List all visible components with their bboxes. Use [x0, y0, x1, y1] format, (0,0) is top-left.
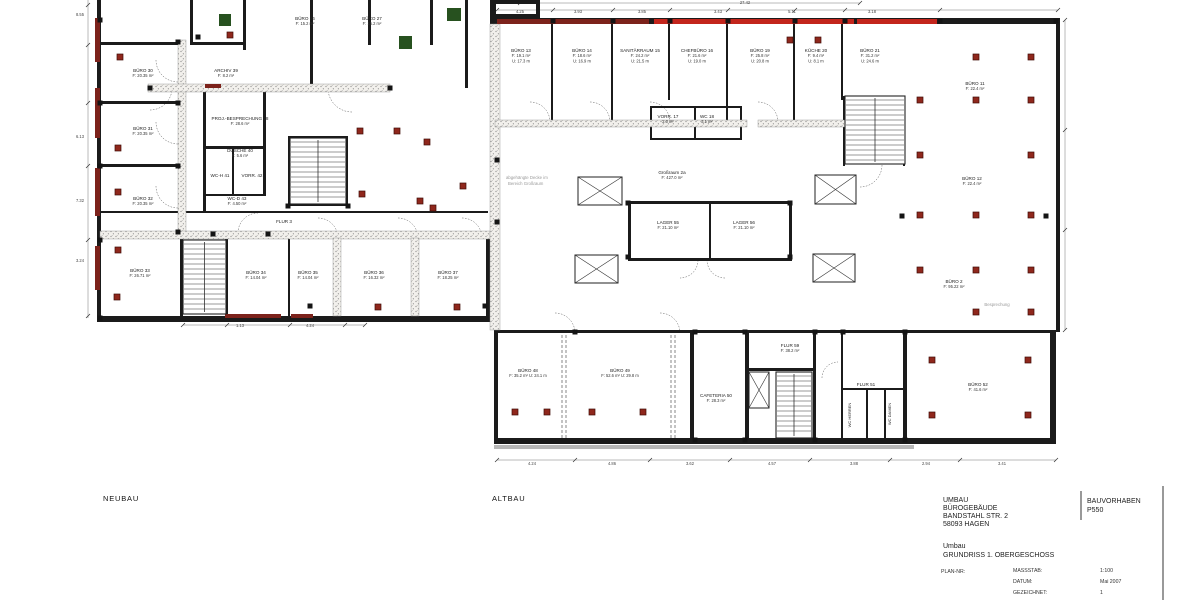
room-label: BÜRO 11F: 22.4 m²: [965, 80, 985, 91]
detector-symbol: [973, 309, 979, 315]
scale-value: 1:100: [1100, 568, 1113, 574]
wall-segment: [709, 201, 711, 258]
wall-pier-marker: [813, 438, 818, 443]
room-label: WC-H 41: [211, 173, 230, 178]
detector-symbol: [394, 128, 400, 134]
svg-text:BÜRO 52: BÜRO 52: [968, 381, 988, 387]
wall-segment: [841, 388, 905, 390]
door-swing-arc: [860, 165, 882, 187]
wall-segment: [333, 238, 341, 316]
floor-plan-canvas: BÜRO 30F: 20.35 m²BÜRO 31F: 20.35 m²BÜRO…: [0, 0, 1200, 600]
door-swing-arc: [707, 260, 725, 278]
detector-symbol: [1025, 412, 1031, 418]
detector-symbol: [1028, 212, 1034, 218]
wall-segment: [884, 390, 886, 440]
svg-text:F: 21.10 m²: F: 21.10 m²: [734, 225, 756, 230]
wall-pier-marker: [551, 19, 556, 24]
drawn-by-value: 1: [1100, 590, 1103, 596]
svg-text:KÜCHE 20: KÜCHE 20: [805, 47, 828, 53]
wall-segment: [745, 368, 815, 371]
wall-pier-marker: [843, 19, 848, 24]
dimension-text: 3.41: [998, 461, 1007, 466]
wall-segment: [310, 0, 313, 84]
svg-text:U: 21.5 m: U: 21.5 m: [631, 58, 649, 63]
wall-segment: [95, 18, 100, 62]
svg-text:BÜRO 33: BÜRO 33: [130, 267, 150, 273]
svg-text:F: 41.6 m²: F: 41.6 m²: [969, 387, 988, 392]
wall-pier-marker: [743, 330, 748, 335]
wall-pier-marker: [626, 255, 631, 260]
wall-segment: [611, 24, 613, 124]
wall-pier-marker: [668, 19, 673, 24]
project-address-line: UMBAU: [943, 497, 968, 504]
wall-segment: [190, 42, 246, 45]
detector-symbol: [917, 152, 923, 158]
room-label: BÜRO 30F: 20.35 m²: [133, 67, 155, 78]
wall-segment: [857, 19, 937, 24]
svg-text:WC-H 41: WC-H 41: [211, 173, 230, 178]
detector-symbol: [917, 212, 923, 218]
svg-text:BÜRO 26: BÜRO 26: [295, 15, 315, 21]
neubau-label: NEUBAU: [103, 494, 139, 503]
wall-pier-marker: [495, 220, 500, 225]
wall-segment: [1050, 330, 1056, 440]
detector-symbol: [973, 212, 979, 218]
walls-layer: [95, 0, 1060, 449]
dimension-text: 3.88: [850, 461, 859, 466]
title-block: UMBAU BÜROGEBÄUDE BANDSTAHL STR. 2 58093…: [941, 486, 1163, 600]
wall-pier-marker: [1044, 214, 1049, 219]
svg-text:F: 15.2 m²: F: 15.2 m²: [296, 21, 315, 26]
staircase: [290, 138, 346, 204]
svg-text:U: 16.9 m: U: 16.9 m: [573, 58, 591, 63]
wall-segment: [225, 314, 281, 318]
room-label: BÜRO 48F: 35.2 m² U: 24.1 m: [509, 367, 547, 378]
detector-symbol: [917, 97, 923, 103]
wall-pier-marker: [286, 204, 291, 209]
detector-symbol: [1025, 357, 1031, 363]
wall-segment: [758, 120, 845, 127]
wall-segment: [494, 0, 540, 4]
wall-segment: [219, 14, 231, 26]
wall-segment: [95, 88, 100, 138]
detector-symbol: [227, 32, 233, 38]
wall-pier-marker: [176, 101, 181, 106]
project-type-label: BAUVORHABEN: [1087, 498, 1141, 505]
wall-segment: [100, 42, 182, 45]
door-swing-arc: [156, 60, 178, 82]
wall-segment: [813, 333, 816, 440]
detector-symbol: [430, 205, 436, 211]
dimension-text: 1.13: [236, 323, 245, 328]
wall-pier-marker: [388, 86, 393, 91]
wall-segment: [690, 333, 694, 440]
detector-symbol: [114, 294, 120, 300]
svg-text:U: 17.3 m: U: 17.3 m: [512, 58, 530, 63]
wall-segment: [841, 24, 843, 100]
room-label: CAFETERIA 50F: 28.3 m²: [700, 393, 732, 403]
svg-text:BÜRO 11: BÜRO 11: [965, 80, 985, 86]
detector-symbol: [787, 37, 793, 43]
svg-text:BÜRO 35: BÜRO 35: [298, 269, 318, 275]
svg-text:BÜRO 27: BÜRO 27: [362, 15, 382, 21]
svg-text:BÜRO 14: BÜRO 14: [572, 47, 592, 53]
wall-pier-marker: [813, 330, 818, 335]
shaft-xbox: [749, 372, 769, 408]
wall-pier-marker: [1054, 19, 1059, 24]
scale-label: MASSSTAB:: [1013, 568, 1042, 574]
room-label: BÜRO 52F: 41.6 m²: [968, 381, 988, 392]
detector-symbol: [115, 145, 121, 151]
door-swing-arc: [156, 186, 178, 208]
detector-symbol: [375, 304, 381, 310]
wall-segment: [1056, 18, 1060, 332]
dimension-text: 3.93: [574, 9, 583, 14]
wall-pier-marker: [938, 19, 943, 24]
wall-pier-marker: [743, 438, 748, 443]
svg-text:BÜRO 34: BÜRO 34: [246, 269, 266, 275]
detector-symbol: [640, 409, 646, 415]
wall-segment: [411, 238, 419, 316]
room-labels-layer: BÜRO 30F: 20.35 m²BÜRO 31F: 20.35 m²BÜRO…: [130, 15, 989, 403]
svg-text:2.0 m²: 2.0 m²: [662, 119, 674, 124]
svg-text:F: 4.50 m²: F: 4.50 m²: [228, 201, 247, 206]
room-label: BÜRO 35F: 14.04 m²: [298, 269, 320, 280]
wall-segment: [494, 445, 914, 449]
svg-text:F: 22.4 m²: F: 22.4 m²: [966, 86, 985, 91]
room-label: LAGER 56F: 21.10 m²: [733, 220, 755, 230]
wall-segment: [841, 333, 843, 440]
dimension-text: 4.57: [768, 461, 777, 466]
project-address-line: BÜROGEBÄUDE: [943, 504, 998, 512]
wall-segment: [494, 438, 1056, 444]
plan-number-label: PLAN-NR:: [941, 569, 965, 575]
wall-segment: [490, 24, 500, 330]
svg-text:F: 26.71 m²: F: 26.71 m²: [130, 273, 152, 278]
wall-pier-marker: [693, 438, 698, 443]
door-swing-arc: [156, 122, 178, 144]
wall-pier-marker: [788, 255, 793, 260]
annotation-text: WC HERREN: [847, 403, 852, 428]
annotation-text: abgehängte Decke im: [506, 175, 548, 180]
svg-text:BÜRO 48: BÜRO 48: [518, 367, 538, 373]
wall-segment: [497, 19, 649, 24]
detector-symbol: [1028, 309, 1034, 315]
svg-text:BÜRO 31: BÜRO 31: [133, 125, 153, 131]
staircase: [183, 240, 226, 314]
room-label: KÜCHE 20F: 9.4 m²U: 8.1 m: [805, 47, 828, 63]
wall-segment: [668, 24, 670, 100]
drawn-by-label: GEZEICHNET:: [1013, 590, 1047, 596]
detector-symbol: [117, 54, 123, 60]
dimension-text: 7.32: [76, 198, 85, 203]
wall-segment: [399, 36, 412, 49]
wall-segment: [100, 231, 490, 239]
detector-symbol: [1028, 152, 1034, 158]
detector-symbol: [973, 54, 979, 60]
detector-symbol: [973, 97, 979, 103]
wall-pier-marker: [148, 86, 153, 91]
wall-segment: [430, 0, 433, 45]
svg-text:F: 35.2 m² U: 24.1 m: F: 35.2 m² U: 24.1 m: [509, 373, 547, 378]
room-label: WC 183.1 m²: [700, 114, 714, 124]
subject-label: Umbau: [943, 543, 966, 550]
staircase: [776, 372, 812, 438]
room-label: BÜRO 33F: 26.71 m²: [130, 267, 152, 278]
dimension-text: 4.24: [528, 461, 537, 466]
room-label: WC-D 43F: 4.50 m²: [228, 196, 247, 206]
room-label: BÜRO 31F: 20.35 m²: [133, 125, 155, 136]
svg-text:F: 52.6 m² U: 29.8 m: F: 52.6 m² U: 29.8 m: [601, 373, 639, 378]
svg-text:BÜRO 30: BÜRO 30: [133, 67, 153, 73]
door-swing-arc: [822, 362, 838, 378]
room-label: LAGER 55F: 21.10 m²: [657, 220, 679, 230]
room-label: DUSCHE 40F: 5.6 m²: [227, 148, 253, 158]
wall-pier-marker: [98, 18, 103, 23]
detector-symbol: [929, 412, 935, 418]
door-swing-arc: [530, 102, 550, 122]
project-address-line: BANDSTAHL STR. 2: [943, 513, 1008, 520]
room-label: BÜRO 36F: 16.32 m²: [364, 269, 386, 280]
svg-text:F: 20.35 m²: F: 20.35 m²: [133, 201, 155, 206]
room-label: ARCHIV 39F: 8.2 m²: [214, 68, 238, 78]
wall-segment: [654, 19, 854, 24]
detector-symbol: [424, 139, 430, 145]
svg-text:U: 19.0 m: U: 19.0 m: [688, 58, 706, 63]
svg-text:F: 21.10 m²: F: 21.10 m²: [658, 225, 680, 230]
room-label: BÜRO 27F: 15.2 m²: [362, 15, 382, 26]
wall-pier-marker: [176, 164, 181, 169]
dimension-text: 2.94: [922, 461, 931, 466]
dimension-text: 5.11: [788, 9, 796, 14]
wall-segment: [148, 84, 390, 92]
annotation-text: Bereich Großraum: [508, 181, 544, 186]
detector-symbol: [1028, 267, 1034, 273]
room-label: CHEFBÜRO 16F: 21.6 m²U: 19.0 m: [681, 47, 714, 63]
wall-segment: [263, 84, 266, 196]
dimension-text: 3.24: [76, 258, 85, 263]
svg-text:3.1 m²: 3.1 m²: [701, 119, 713, 124]
room-label: BÜRO 34F: 14.04 m²: [246, 269, 268, 280]
detector-symbol: [1028, 54, 1034, 60]
wall-pier-marker: [903, 438, 908, 443]
svg-text:BÜRO 36: BÜRO 36: [364, 269, 384, 275]
wall-pier-marker: [346, 204, 351, 209]
svg-text:CHEFBÜRO 16: CHEFBÜRO 16: [681, 47, 714, 53]
room-label: BÜRO 19F: 25.8 m²U: 20.8 m: [750, 47, 770, 63]
detector-symbol: [815, 37, 821, 43]
detector-symbol: [512, 409, 518, 415]
door-swing-arc: [758, 102, 778, 122]
svg-text:BÜRO 12: BÜRO 12: [962, 175, 982, 181]
wall-pier-marker: [211, 232, 216, 237]
floor-plan-drawing: BÜRO 30F: 20.35 m²BÜRO 31F: 20.35 m²BÜRO…: [0, 0, 1200, 600]
dimension-text: 4.86: [608, 461, 617, 466]
wall-pier-marker: [176, 230, 181, 235]
project-address-line: 58093 HAGEN: [943, 521, 989, 528]
detector-symbol: [544, 409, 550, 415]
wall-segment: [628, 201, 631, 258]
wing-labels: NEUBAU ALTBAU: [103, 494, 525, 503]
room-label: FLUR 3: [276, 219, 292, 224]
detector-symbol: [454, 304, 460, 310]
wall-pier-marker: [693, 330, 698, 335]
dimension-text: 3.43: [714, 9, 723, 14]
wall-segment: [650, 138, 742, 140]
svg-text:F: 20.35 m²: F: 20.35 m²: [133, 73, 155, 78]
dimension-text: 4.25: [516, 9, 525, 14]
wall-pier-marker: [626, 201, 631, 206]
detector-symbol: [460, 183, 466, 189]
room-label: FLUR 51: [857, 382, 876, 387]
detector-symbol: [417, 198, 423, 204]
wall-segment: [447, 8, 461, 21]
room-label: BÜRO 32F: 20.35 m²: [133, 195, 155, 206]
room-label: SANITÄRRAUM 15F: 24.2 m²U: 21.5 m: [620, 47, 660, 63]
wall-pier-marker: [841, 330, 846, 335]
wall-pier-marker: [98, 316, 103, 321]
dimension-text: 4.24: [306, 323, 315, 328]
wall-pier-marker: [900, 214, 905, 219]
svg-text:F: 28.6 m²: F: 28.6 m²: [231, 121, 250, 126]
dimension-text: 6.13: [76, 134, 85, 139]
wall-segment: [203, 149, 206, 211]
wall-pier-marker: [196, 35, 201, 40]
svg-text:BÜRO 13: BÜRO 13: [511, 47, 531, 53]
svg-text:BÜRO 2: BÜRO 2: [945, 278, 963, 284]
wall-pier-marker: [611, 19, 616, 24]
wall-segment: [100, 164, 182, 167]
shaft-xbox: [815, 175, 856, 204]
wall-pier-marker: [793, 19, 798, 24]
room-label: PROJ.-BESPRECHUNG 38F: 28.6 m²: [212, 116, 269, 126]
detector-symbol: [917, 267, 923, 273]
room-label: BÜRO 13F: 19.1 m²U: 17.3 m: [511, 47, 531, 63]
svg-text:F: 20.35 m²: F: 20.35 m²: [133, 131, 155, 136]
detector-symbol: [115, 189, 121, 195]
svg-text:F: 15.2 m²: F: 15.2 m²: [363, 21, 382, 26]
wall-pier-marker: [98, 101, 103, 106]
wall-pier-marker: [573, 330, 578, 335]
dimension-text: 27.42: [740, 0, 751, 5]
wall-pier-marker: [903, 330, 908, 335]
svg-text:VORR. 42: VORR. 42: [242, 173, 263, 178]
wall-pier-marker: [726, 19, 731, 24]
wall-segment: [100, 101, 182, 104]
wall-pier-marker: [788, 201, 793, 206]
svg-text:F: 16.32 m²: F: 16.32 m²: [364, 275, 386, 280]
wall-segment: [205, 84, 221, 88]
wall-pier-marker: [308, 304, 313, 309]
svg-text:FLUR 51: FLUR 51: [857, 382, 876, 387]
svg-text:F: 427.0 m²: F: 427.0 m²: [662, 175, 684, 180]
door-swing-arc: [590, 102, 610, 122]
wall-pier-marker: [98, 164, 103, 169]
wall-segment: [866, 390, 868, 440]
wall-pier-marker: [176, 40, 181, 45]
symbols-layer: [98, 18, 1059, 443]
shaft-xbox: [575, 255, 618, 283]
dimension-text: 8.55: [76, 12, 85, 17]
wall-segment: [288, 238, 290, 316]
dimension-text: 3.62: [686, 461, 695, 466]
svg-text:BÜRO 32: BÜRO 32: [133, 195, 153, 201]
room-label: BÜRO 37F: 18.25 m²: [438, 269, 460, 280]
wall-segment: [494, 330, 1056, 333]
wall-pier-marker: [495, 158, 500, 163]
wall-segment: [628, 258, 792, 261]
door-swing-arc: [680, 260, 698, 278]
svg-text:F: 18.25 m²: F: 18.25 m²: [438, 275, 460, 280]
project-number: P550: [1087, 507, 1103, 514]
room-label: BÜRO 26F: 15.2 m²: [295, 15, 315, 26]
wall-segment: [551, 24, 553, 124]
wall-segment: [291, 314, 313, 318]
shaft-xbox: [813, 254, 855, 282]
wall-segment: [903, 333, 907, 440]
wall-segment: [203, 84, 206, 149]
wall-segment: [726, 24, 728, 124]
staircase: [845, 96, 905, 164]
svg-text:F: 22.4 m²: F: 22.4 m²: [963, 181, 982, 186]
room-label: BÜRO 21F: 31.2 m²U: 24.6 m: [860, 47, 880, 63]
wall-pier-marker: [483, 304, 488, 309]
svg-text:F: 14.04 m²: F: 14.04 m²: [246, 275, 268, 280]
wall-segment: [95, 246, 100, 290]
svg-text:F: 5.6 m²: F: 5.6 m²: [232, 153, 249, 158]
wall-segment: [95, 168, 100, 216]
detector-symbol: [589, 409, 595, 415]
detector-symbol: [357, 128, 363, 134]
shaft-xbox: [578, 177, 622, 205]
svg-text:BÜRO 21: BÜRO 21: [860, 47, 880, 53]
wall-segment: [494, 14, 540, 18]
wall-segment: [745, 333, 749, 440]
svg-text:U: 24.6 m: U: 24.6 m: [861, 58, 879, 63]
altbau-label: ALTBAU: [492, 494, 525, 503]
svg-text:F: 8.2 m²: F: 8.2 m²: [218, 73, 235, 78]
wall-segment: [178, 40, 186, 234]
svg-text:F: 38.2 m²: F: 38.2 m²: [781, 348, 800, 353]
date-label: DATUM:: [1013, 579, 1033, 585]
wall-segment: [465, 0, 468, 88]
drawing-title: GRUNDRISS 1. OBERGESCHOSS: [943, 552, 1055, 559]
detector-symbol: [359, 191, 365, 197]
wall-pier-marker: [98, 238, 103, 243]
wall-pier-marker: [266, 232, 271, 237]
dimension-text: 3.85: [638, 9, 647, 14]
dimension-text: 3.18: [868, 9, 877, 14]
svg-text:FLUR 3: FLUR 3: [276, 219, 292, 224]
svg-text:SANITÄRRAUM 15: SANITÄRRAUM 15: [620, 47, 660, 53]
room-label: BÜRO 2F: 95.22 m²: [944, 278, 966, 289]
svg-text:BÜRO 49: BÜRO 49: [610, 367, 630, 373]
room-label: FLUR 59F: 38.2 m²: [781, 343, 800, 353]
svg-text:F: 14.04 m²: F: 14.04 m²: [298, 275, 320, 280]
annotation-text: WC DAMEN: [887, 403, 892, 425]
detector-symbol: [1028, 97, 1034, 103]
door-swing-arc: [238, 213, 258, 233]
room-label: BÜRO 49F: 52.6 m² U: 29.8 m: [601, 367, 639, 378]
room-label: BÜRO 12F: 22.4 m²: [962, 175, 982, 186]
wall-segment: [494, 330, 498, 442]
date-value: Mai 2007: [1100, 579, 1121, 585]
detector-symbol: [929, 357, 935, 363]
room-label: Großraum 2aF: 427.0 m²: [658, 170, 686, 180]
wall-segment: [190, 0, 193, 44]
svg-text:U: 20.8 m: U: 20.8 m: [751, 58, 769, 63]
detector-symbol: [115, 247, 121, 253]
